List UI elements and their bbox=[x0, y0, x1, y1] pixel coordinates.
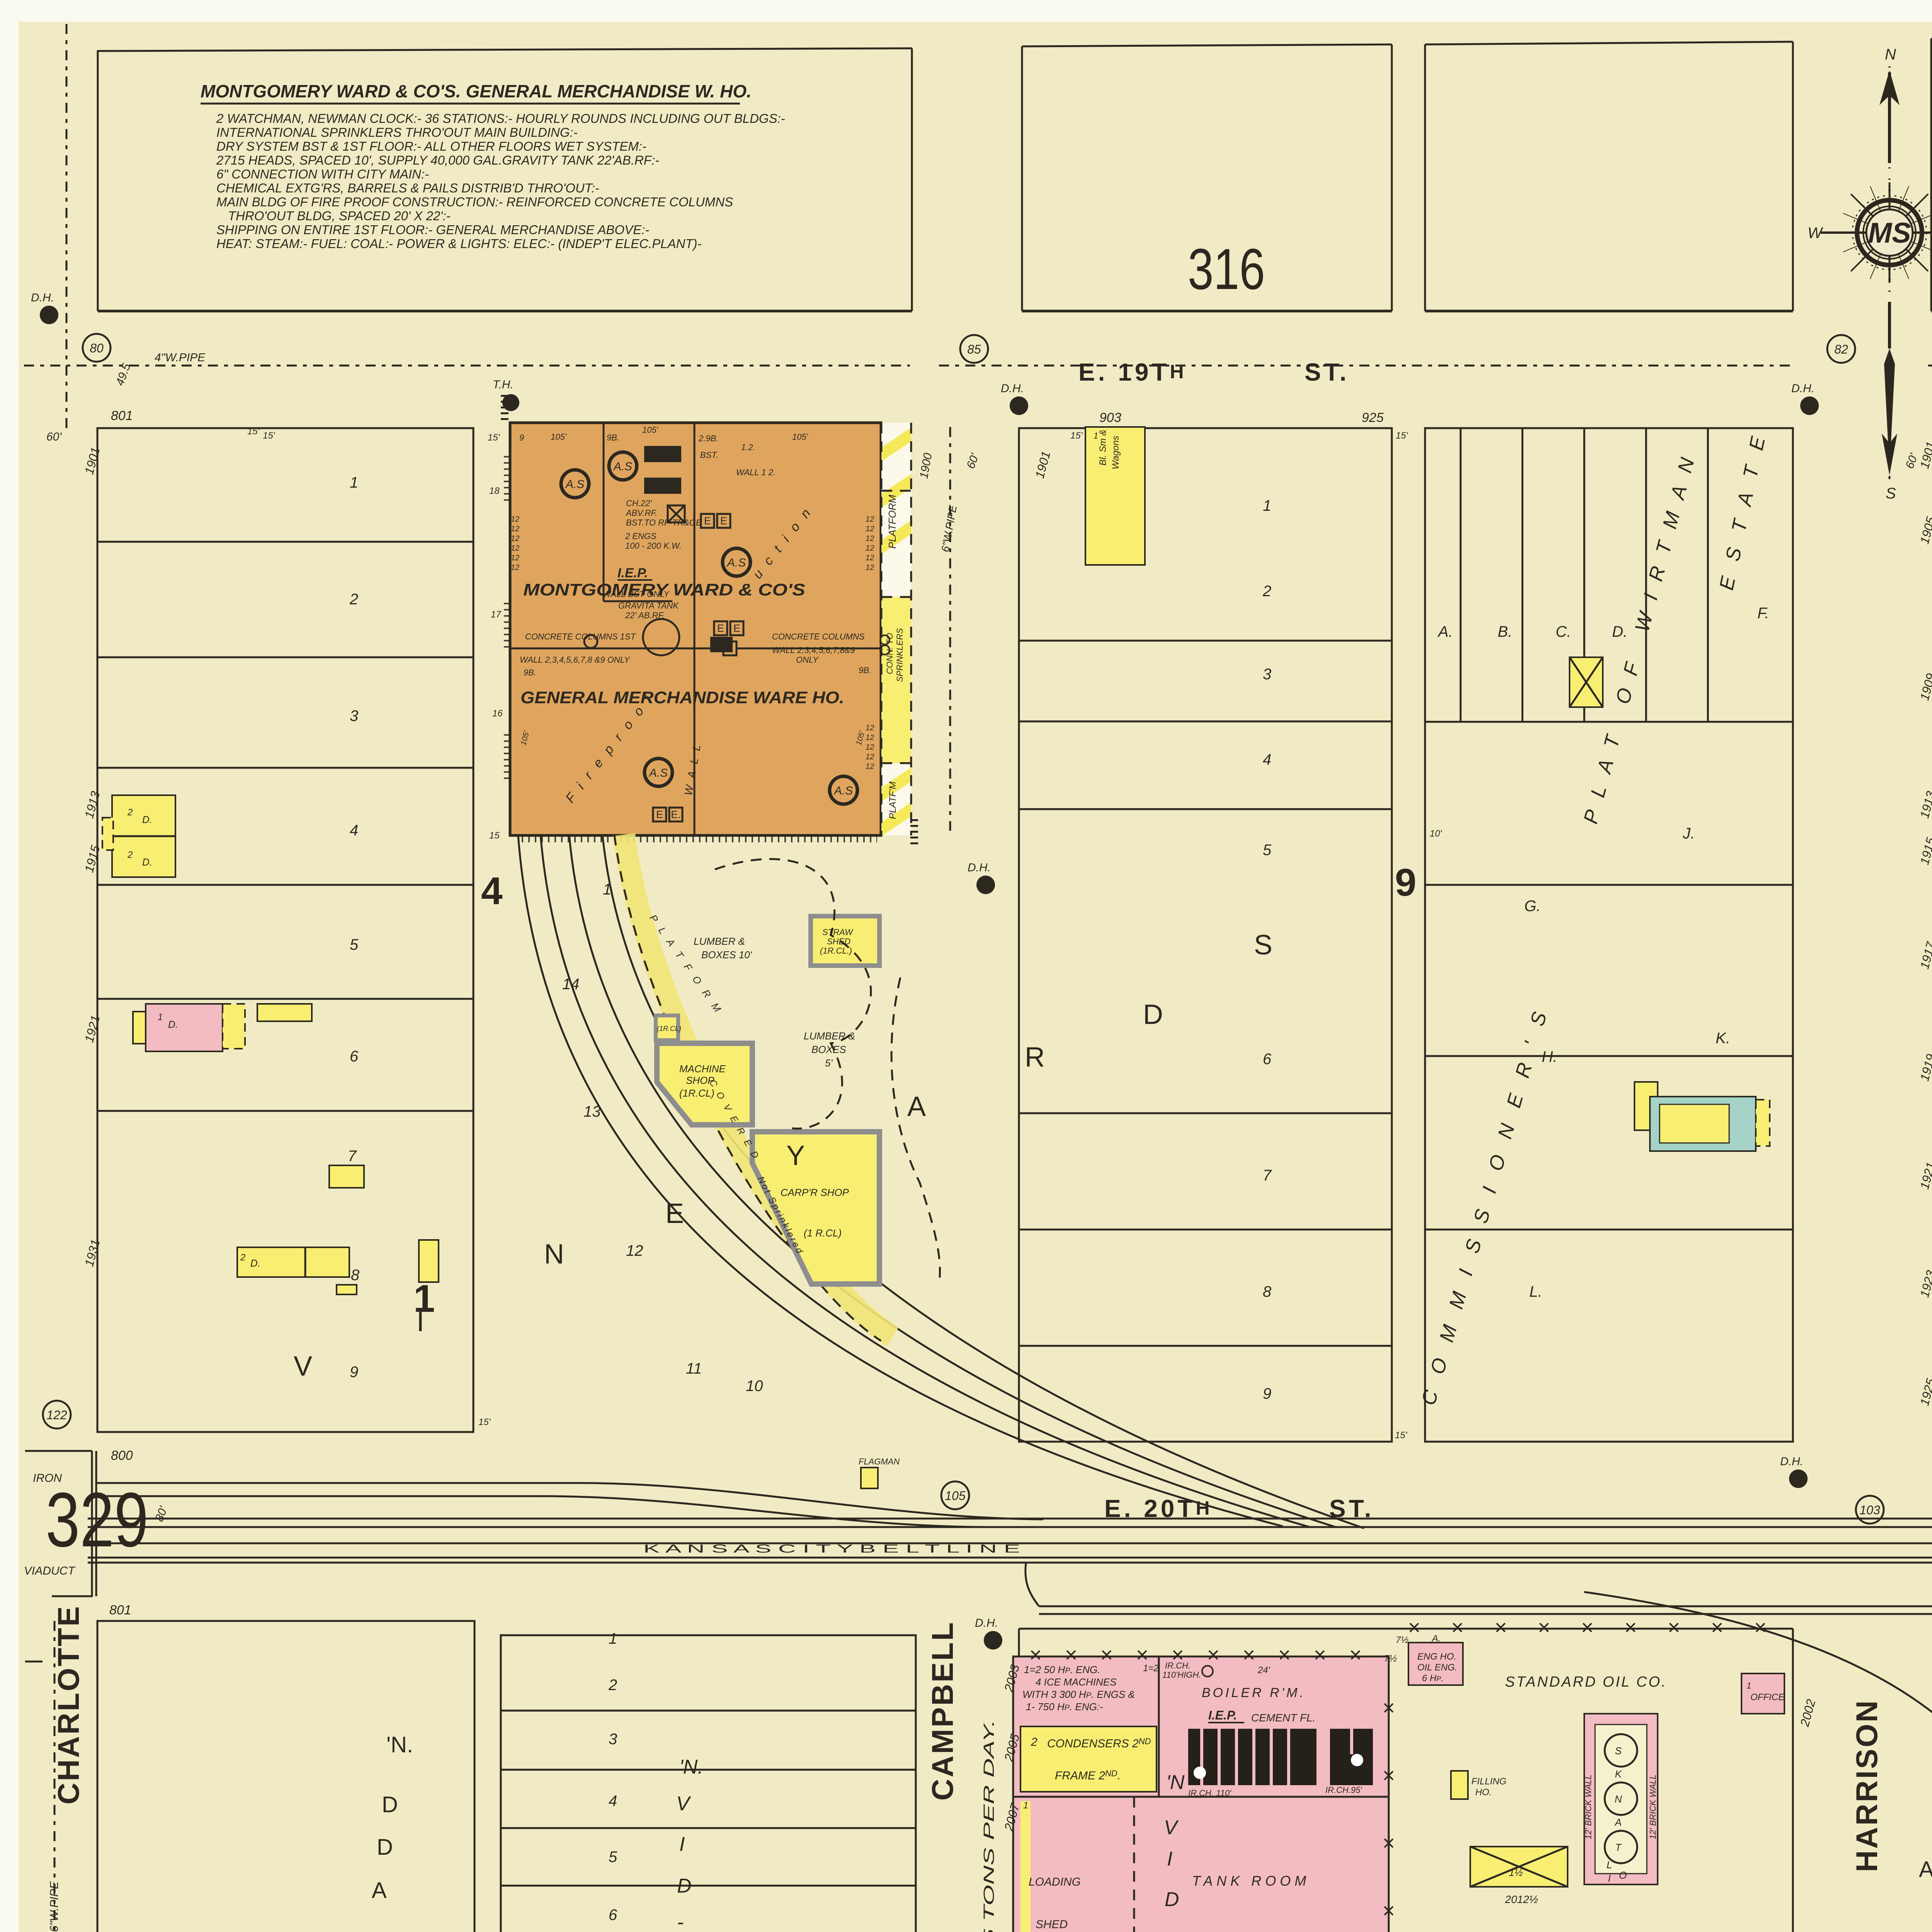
svg-text:W: W bbox=[1808, 224, 1823, 241]
svg-text:12' BRICK WALL: 12' BRICK WALL bbox=[1648, 1774, 1658, 1839]
svg-text:10: 10 bbox=[746, 1378, 763, 1395]
svg-text:12: 12 bbox=[866, 753, 874, 761]
svg-text:A.: A. bbox=[1431, 1633, 1441, 1644]
svg-text:(1R.CL.): (1R.CL.) bbox=[820, 946, 852, 956]
svg-text:L: L bbox=[1607, 1859, 1612, 1871]
svg-text:HO.: HO. bbox=[1475, 1787, 1492, 1798]
svg-text:E: E bbox=[656, 809, 663, 820]
svg-text:12: 12 bbox=[511, 534, 519, 543]
svg-text:T.H.: T.H. bbox=[493, 378, 514, 391]
svg-text:4: 4 bbox=[1263, 751, 1271, 768]
svg-text:GRAVITA TANK: GRAVITA TANK bbox=[618, 601, 679, 611]
svg-text:12: 12 bbox=[511, 544, 519, 553]
svg-text:C.: C. bbox=[1556, 623, 1571, 640]
svg-text:BST.: BST. bbox=[700, 450, 718, 460]
svg-text:7: 7 bbox=[348, 1148, 357, 1165]
svg-text:'N.: 'N. bbox=[386, 1732, 413, 1757]
svg-text:D.: D. bbox=[1612, 623, 1628, 640]
svg-text:K A N S A S C I T Y B E L: K A N S A S C I T Y B E L T L I N E bbox=[643, 1543, 1020, 1555]
svg-text:105': 105' bbox=[792, 432, 808, 442]
svg-text:A.S: A.S bbox=[648, 767, 668, 779]
svg-text:A: A bbox=[907, 1091, 926, 1122]
svg-text:'N.: 'N. bbox=[679, 1756, 703, 1778]
svg-text:12: 12 bbox=[866, 525, 874, 533]
svg-text:2.9B.: 2.9B. bbox=[698, 434, 718, 443]
svg-text:PLATF'M: PLATF'M bbox=[888, 782, 898, 819]
svg-text:3: 3 bbox=[350, 707, 358, 724]
svg-text:2 WATCHMAN, NEWMAN CLOCK:- 36: 2 WATCHMAN, NEWMAN CLOCK:- 36 STATIONS:-… bbox=[216, 111, 785, 126]
svg-text:INTERNATIONAL SPRINKLERS THRO': INTERNATIONAL SPRINKLERS THRO'OUT MAIN B… bbox=[216, 125, 578, 139]
svg-text:15: 15 bbox=[489, 830, 500, 841]
svg-text:15': 15' bbox=[1396, 430, 1408, 441]
svg-text:ENG HO.: ENG HO. bbox=[1417, 1651, 1456, 1662]
svg-text:E: E bbox=[733, 622, 740, 634]
svg-text:IR.CH.95': IR.CH.95' bbox=[1325, 1785, 1362, 1795]
svg-text:BOXES 10': BOXES 10' bbox=[701, 949, 752, 961]
svg-text:IR.CH.: IR.CH. bbox=[1165, 1661, 1190, 1670]
svg-text:15': 15' bbox=[1395, 1430, 1408, 1440]
svg-text:ST.: ST. bbox=[1329, 1495, 1374, 1522]
svg-text:MS: MS bbox=[1868, 217, 1911, 249]
svg-text:CONDENSERS 2ND: CONDENSERS 2ND bbox=[1047, 1736, 1151, 1750]
svg-text:BOILER R'M.: BOILER R'M. bbox=[1202, 1685, 1306, 1700]
svg-text:15': 15' bbox=[1070, 430, 1083, 441]
svg-text:316: 316 bbox=[1188, 236, 1265, 301]
svg-text:12: 12 bbox=[511, 515, 519, 524]
svg-text:105': 105' bbox=[551, 432, 567, 442]
svg-text:8: 8 bbox=[351, 1267, 360, 1284]
svg-text:E: E bbox=[720, 515, 727, 527]
svg-text:MONTGOMERY WARD & CO'S. GENERA: MONTGOMERY WARD & CO'S. GENERAL MERCHAND… bbox=[201, 81, 752, 101]
svg-text:12: 12 bbox=[511, 563, 519, 572]
svg-text:12' BRICK WALL: 12' BRICK WALL bbox=[1583, 1774, 1593, 1839]
svg-text:F.: F. bbox=[1757, 605, 1769, 622]
svg-text:12: 12 bbox=[511, 525, 519, 533]
svg-text:MAIN BLDG OF FIRE PROOF CONSTR: MAIN BLDG OF FIRE PROOF CONSTRUCTION:- R… bbox=[216, 195, 733, 209]
svg-text:E. 19TH: E. 19TH bbox=[1078, 358, 1187, 386]
svg-text:WALL 2,3,4,5,6,7,8 &9 ONLY: WALL 2,3,4,5,6,7,8 &9 ONLY bbox=[520, 655, 630, 665]
svg-text:L.: L. bbox=[1529, 1283, 1542, 1300]
svg-text:15': 15' bbox=[263, 430, 276, 441]
svg-text:4: 4 bbox=[350, 822, 358, 839]
svg-text:13: 13 bbox=[583, 1103, 601, 1120]
svg-text:800: 800 bbox=[111, 1448, 133, 1463]
svg-text:CONCRETE COLUMNS 1ST: CONCRETE COLUMNS 1ST bbox=[525, 632, 636, 641]
svg-text:I: I bbox=[1167, 1848, 1172, 1870]
svg-text:TANK ROOM: TANK ROOM bbox=[1192, 1873, 1310, 1889]
svg-text:12: 12 bbox=[866, 724, 874, 732]
svg-text:N: N bbox=[1885, 46, 1896, 63]
svg-text:329: 329 bbox=[46, 1477, 148, 1563]
svg-text:2: 2 bbox=[349, 591, 358, 608]
svg-text:12: 12 bbox=[866, 563, 874, 572]
svg-text:FLAGMAN: FLAGMAN bbox=[859, 1457, 900, 1466]
svg-text:CEMENT FL.: CEMENT FL. bbox=[1251, 1712, 1315, 1724]
svg-text:11: 11 bbox=[686, 1360, 702, 1377]
svg-text:S: S bbox=[1886, 485, 1896, 502]
svg-text:7: 7 bbox=[1263, 1167, 1272, 1184]
svg-text:FILLING: FILLING bbox=[1471, 1776, 1507, 1787]
svg-text:MACHINE: MACHINE bbox=[679, 1063, 726, 1075]
svg-text:801: 801 bbox=[109, 1603, 131, 1617]
svg-text:D: D bbox=[382, 1792, 398, 1817]
svg-text:122: 122 bbox=[46, 1408, 67, 1422]
svg-text:12: 12 bbox=[866, 762, 874, 771]
svg-text:12: 12 bbox=[866, 733, 874, 742]
svg-text:WITH 3 300 HP. ENGS &: WITH 3 300 HP. ENGS & bbox=[1022, 1689, 1135, 1700]
svg-text:ONLY: ONLY bbox=[796, 655, 819, 665]
svg-text:CH.22': CH.22' bbox=[626, 498, 652, 508]
svg-text:IRON: IRON bbox=[33, 1472, 62, 1485]
svg-text:12: 12 bbox=[866, 534, 874, 543]
svg-text:D: D bbox=[677, 1875, 692, 1897]
svg-text:15': 15' bbox=[247, 426, 260, 437]
svg-text:103: 103 bbox=[1859, 1503, 1880, 1517]
svg-text:24': 24' bbox=[1257, 1665, 1270, 1675]
svg-text:D.H.: D.H. bbox=[975, 1617, 998, 1629]
svg-text:-: - bbox=[1165, 1927, 1172, 1932]
svg-text:N: N bbox=[544, 1239, 564, 1270]
svg-text:CAMPBELL: CAMPBELL bbox=[925, 1621, 959, 1801]
svg-text:D: D bbox=[1165, 1888, 1179, 1911]
svg-text:J.: J. bbox=[1682, 825, 1695, 842]
svg-text:N: N bbox=[1615, 1793, 1622, 1805]
svg-text:LOADING: LOADING bbox=[1029, 1876, 1081, 1888]
svg-text:9: 9 bbox=[519, 433, 524, 442]
svg-text:I.E.P.: I.E.P. bbox=[617, 566, 648, 580]
svg-text:110'HIGH.: 110'HIGH. bbox=[1162, 1670, 1201, 1680]
svg-text:D.H.: D.H. bbox=[31, 291, 54, 304]
svg-text:WALL 2,3,4,5,6,7,8&9: WALL 2,3,4,5,6,7,8&9 bbox=[772, 645, 855, 655]
svg-text:2: 2 bbox=[1031, 1736, 1037, 1748]
svg-text:5: 5 bbox=[1263, 842, 1272, 859]
svg-text:LUMBER &: LUMBER & bbox=[804, 1030, 855, 1042]
svg-text:105: 105 bbox=[945, 1489, 966, 1503]
svg-text:105': 105' bbox=[642, 425, 658, 435]
svg-text:BST.TO RF-TR&GE: BST.TO RF-TR&GE bbox=[626, 518, 702, 527]
svg-text:A.S: A.S bbox=[833, 784, 853, 797]
svg-text:OIL ENG.: OIL ENG. bbox=[1417, 1662, 1458, 1673]
svg-text:12: 12 bbox=[866, 743, 874, 752]
svg-text:VIADUCT: VIADUCT bbox=[24, 1565, 76, 1577]
svg-text:6: 6 bbox=[350, 1048, 359, 1065]
svg-text:A: A bbox=[1614, 1816, 1621, 1828]
svg-text:D.H.: D.H. bbox=[1001, 382, 1024, 395]
svg-text:6: 6 bbox=[1263, 1051, 1272, 1068]
svg-text:D.H.: D.H. bbox=[1791, 382, 1815, 395]
svg-text:22' AB.RF.: 22' AB.RF. bbox=[625, 611, 665, 620]
svg-text:V: V bbox=[676, 1793, 691, 1815]
svg-text:K: K bbox=[1615, 1768, 1622, 1780]
svg-text:85: 85 bbox=[967, 342, 981, 356]
svg-text:D.H.: D.H. bbox=[968, 861, 991, 874]
svg-text:801: 801 bbox=[111, 408, 133, 423]
svg-text:4"W.PIPE: 4"W.PIPE bbox=[155, 351, 206, 364]
svg-text:E.: E. bbox=[671, 809, 681, 820]
svg-text:1: 1 bbox=[350, 474, 358, 491]
svg-text:4 ICE MACHINES: 4 ICE MACHINES bbox=[1036, 1676, 1117, 1688]
svg-text:2: 2 bbox=[127, 807, 133, 818]
svg-text:9: 9 bbox=[1395, 861, 1417, 904]
svg-text:D.: D. bbox=[250, 1257, 260, 1269]
svg-text:CONN. TO: CONN. TO bbox=[885, 633, 895, 674]
svg-text:9B.: 9B. bbox=[607, 433, 619, 442]
svg-text:2: 2 bbox=[240, 1252, 245, 1263]
svg-text:4: 4 bbox=[481, 869, 503, 913]
svg-text:SHED: SHED bbox=[827, 937, 850, 946]
svg-text:OFFICE: OFFICE bbox=[1750, 1692, 1785, 1702]
svg-text:7½: 7½ bbox=[1396, 1635, 1408, 1645]
svg-text:H.: H. bbox=[1542, 1048, 1557, 1065]
svg-text:'N: 'N bbox=[1166, 1771, 1185, 1794]
svg-text:G.: G. bbox=[1524, 898, 1541, 915]
svg-text:6" CONNECTION WITH CITY MAIN:-: 6" CONNECTION WITH CITY MAIN:- bbox=[216, 167, 429, 181]
svg-text:Wagons: Wagons bbox=[1111, 435, 1121, 469]
svg-text:E. 20TH: E. 20TH bbox=[1104, 1495, 1213, 1522]
svg-text:15': 15' bbox=[478, 1417, 491, 1427]
svg-text:9: 9 bbox=[350, 1364, 358, 1381]
svg-text:903: 903 bbox=[1099, 410, 1121, 425]
svg-text:16: 16 bbox=[492, 708, 503, 719]
svg-text:1: 1 bbox=[603, 881, 611, 898]
svg-text:DRY SYSTEM BST & 1ST FLOOR:- A: DRY SYSTEM BST & 1ST FLOOR:- ALL OTHER F… bbox=[216, 139, 646, 153]
svg-text:CHEMICAL EXTG'RS, BARRELS & PA: CHEMICAL EXTG'RS, BARRELS & PAILS DISTRI… bbox=[216, 181, 599, 195]
svg-text:ABV.RF.: ABV.RF. bbox=[625, 508, 657, 518]
svg-text:2012½: 2012½ bbox=[1505, 1893, 1538, 1905]
svg-text:S: S bbox=[1615, 1745, 1622, 1757]
svg-text:1: 1 bbox=[1023, 1800, 1028, 1811]
svg-text:2: 2 bbox=[1262, 583, 1271, 600]
svg-text:WALL 1 2.: WALL 1 2. bbox=[736, 468, 776, 477]
svg-text:D.: D. bbox=[142, 856, 152, 868]
svg-text:5: 5 bbox=[350, 936, 359, 953]
svg-text:I: I bbox=[1608, 1872, 1611, 1884]
svg-text:(1R.CL): (1R.CL) bbox=[679, 1087, 714, 1099]
svg-text:18: 18 bbox=[489, 486, 500, 496]
svg-text:HEAT: STEAM:- FUEL: COAL:- POW: HEAT: STEAM:- FUEL: COAL:- POWER & LIGHT… bbox=[216, 236, 702, 251]
svg-text:A: A bbox=[1919, 1857, 1932, 1882]
svg-text:WALL BST ONLY: WALL BST ONLY bbox=[603, 589, 670, 599]
svg-text:IR.CH. 110': IR.CH. 110' bbox=[1188, 1788, 1231, 1798]
svg-text:2: 2 bbox=[608, 1677, 617, 1694]
svg-text:CONCRETE COLUMNS: CONCRETE COLUMNS bbox=[772, 632, 865, 641]
svg-text:4: 4 bbox=[609, 1793, 617, 1810]
svg-text:9B.: 9B. bbox=[859, 665, 871, 675]
svg-text:I: I bbox=[679, 1833, 685, 1855]
svg-text:S: S bbox=[1254, 930, 1272, 961]
svg-text:8: 8 bbox=[1263, 1283, 1272, 1300]
svg-text:BOXES: BOXES bbox=[811, 1044, 846, 1055]
svg-text:(1R.CL): (1R.CL) bbox=[657, 1025, 681, 1032]
svg-text:SPRINKLERS: SPRINKLERS bbox=[895, 628, 905, 682]
svg-text:9: 9 bbox=[1263, 1385, 1271, 1402]
svg-text:6: 6 bbox=[609, 1906, 617, 1923]
svg-text:D.: D. bbox=[168, 1019, 178, 1030]
svg-text:3: 3 bbox=[609, 1731, 617, 1748]
svg-text:THRO'OUT BLDG, SPACED 20' X 22: THRO'OUT BLDG, SPACED 20' X 22':- bbox=[228, 209, 451, 223]
svg-text:V: V bbox=[294, 1351, 312, 1382]
svg-text:A.S: A.S bbox=[726, 556, 746, 569]
svg-text:Bl. Sm &: Bl. Sm & bbox=[1098, 430, 1108, 466]
svg-text:12: 12 bbox=[866, 544, 874, 553]
svg-text:CARP'R SHOP: CARP'R SHOP bbox=[781, 1187, 849, 1198]
svg-text:12: 12 bbox=[866, 515, 874, 524]
svg-text:LUMBER &: LUMBER & bbox=[694, 935, 745, 947]
svg-text:A: A bbox=[372, 1878, 387, 1903]
svg-text:1.2.: 1.2. bbox=[741, 442, 755, 452]
svg-text:17: 17 bbox=[491, 609, 502, 620]
svg-text:D: D bbox=[377, 1835, 393, 1860]
svg-text:2: 2 bbox=[127, 850, 133, 860]
svg-text:ST.: ST. bbox=[1304, 358, 1349, 386]
svg-text:PLATFORM: PLATFORM bbox=[886, 495, 898, 549]
svg-text:12: 12 bbox=[511, 554, 519, 562]
svg-text:1: 1 bbox=[413, 1277, 435, 1320]
svg-text:-: - bbox=[677, 1911, 684, 1932]
svg-text:E: E bbox=[665, 1198, 684, 1229]
svg-text:14: 14 bbox=[562, 976, 580, 993]
svg-text:60': 60' bbox=[46, 430, 62, 443]
svg-text:CHARLOTTE: CHARLOTTE bbox=[51, 1605, 85, 1804]
svg-text:1=2 50 HP. ENG.: 1=2 50 HP. ENG. bbox=[1024, 1664, 1100, 1675]
svg-text:A.S: A.S bbox=[613, 460, 632, 473]
svg-text:T: T bbox=[1615, 1842, 1622, 1853]
svg-text:925: 925 bbox=[1362, 410, 1384, 425]
svg-text:82: 82 bbox=[1834, 342, 1848, 356]
svg-text:A.S: A.S bbox=[565, 478, 584, 491]
svg-text:1: 1 bbox=[609, 1630, 617, 1647]
svg-text:1: 1 bbox=[1263, 497, 1271, 514]
svg-text:B.: B. bbox=[1498, 623, 1512, 640]
svg-text:6"W.PIPE: 6"W.PIPE bbox=[48, 1881, 61, 1932]
svg-text:D: D bbox=[1143, 999, 1163, 1030]
svg-text:STRAW: STRAW bbox=[822, 927, 854, 937]
svg-text:15': 15' bbox=[488, 432, 500, 443]
svg-text:1: 1 bbox=[1094, 431, 1098, 440]
svg-text:O: O bbox=[1619, 1869, 1627, 1881]
svg-text:5': 5' bbox=[825, 1057, 833, 1069]
svg-text:1=2: 1=2 bbox=[1143, 1663, 1159, 1673]
svg-text:12: 12 bbox=[866, 554, 874, 562]
svg-text:100 - 200 K.W.: 100 - 200 K.W. bbox=[625, 541, 682, 551]
svg-text:1: 1 bbox=[158, 1012, 163, 1022]
svg-text:6 HP.: 6 HP. bbox=[1422, 1673, 1444, 1684]
svg-text:V: V bbox=[1164, 1816, 1179, 1839]
svg-text:E: E bbox=[717, 622, 724, 634]
svg-text:3: 3 bbox=[1263, 666, 1271, 683]
svg-text:1: 1 bbox=[1747, 1681, 1751, 1690]
svg-text:R: R bbox=[1025, 1042, 1045, 1073]
svg-text:1½: 1½ bbox=[1509, 1867, 1523, 1878]
svg-text:80: 80 bbox=[90, 341, 104, 355]
svg-text:SHED: SHED bbox=[1036, 1918, 1068, 1931]
svg-text:7½: 7½ bbox=[1384, 1653, 1397, 1664]
svg-text:D.: D. bbox=[142, 814, 152, 825]
svg-text:(1 R.CL): (1 R.CL) bbox=[804, 1227, 842, 1239]
svg-text:CENTRAL ICE CO. CAP'C'Y 32: CENTRAL ICE CO. CAP'C'Y 325 TONS PER DAY… bbox=[981, 1719, 997, 1932]
svg-text:2715 HEADS, SPACED 10', SUPPLY: 2715 HEADS, SPACED 10', SUPPLY 40,000 GA… bbox=[216, 153, 659, 167]
svg-text:5: 5 bbox=[609, 1849, 617, 1866]
svg-text:2 ENGS: 2 ENGS bbox=[625, 531, 656, 541]
svg-text:D.H.: D.H. bbox=[1780, 1455, 1803, 1468]
svg-text:12: 12 bbox=[626, 1242, 643, 1259]
svg-text:STANDARD OIL CO.: STANDARD OIL CO. bbox=[1505, 1674, 1667, 1690]
svg-text:GENERAL MERCHANDISE WARE HO.: GENERAL MERCHANDISE WARE HO. bbox=[520, 688, 844, 707]
svg-text:HARRISON: HARRISON bbox=[1850, 1699, 1884, 1872]
svg-text:A.: A. bbox=[1437, 623, 1453, 640]
svg-text:K.: K. bbox=[1716, 1030, 1730, 1047]
svg-text:9B.: 9B. bbox=[524, 668, 536, 677]
svg-text:I.E.P.: I.E.P. bbox=[1208, 1708, 1237, 1722]
svg-text:10': 10' bbox=[1430, 828, 1442, 839]
svg-text:Y: Y bbox=[786, 1140, 805, 1171]
svg-text:SHIPPING ON ENTIRE 1ST FLOOR:-: SHIPPING ON ENTIRE 1ST FLOOR:- GENERAL M… bbox=[216, 223, 649, 237]
svg-text:E: E bbox=[704, 515, 711, 527]
